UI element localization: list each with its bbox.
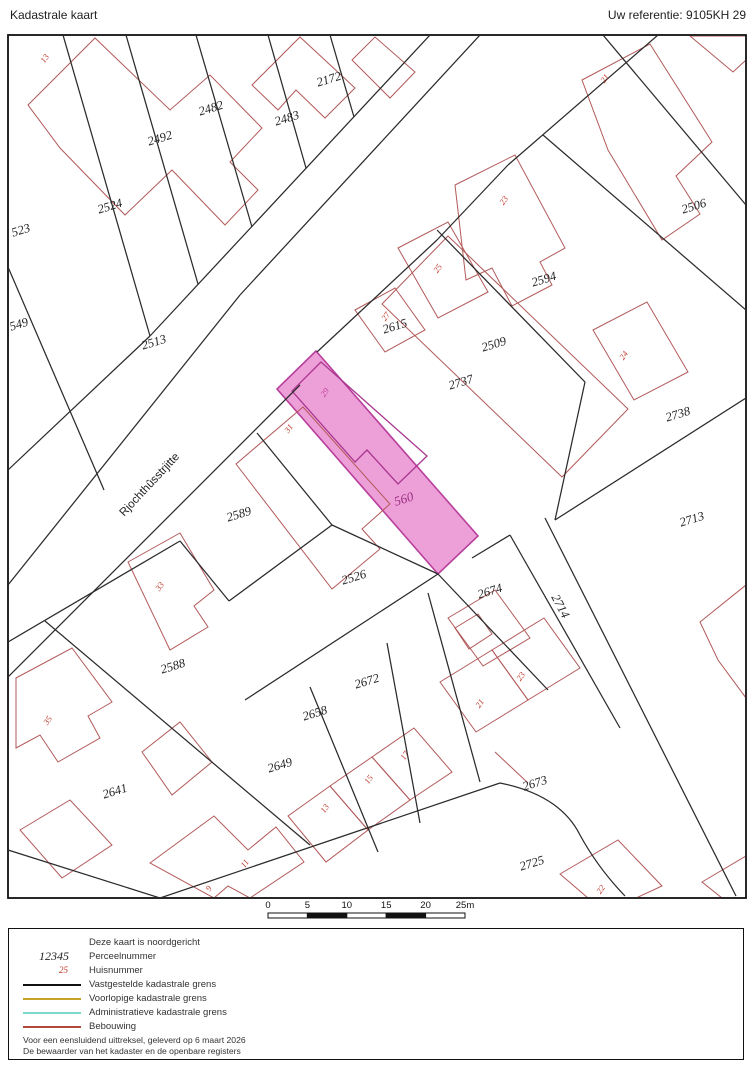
legend-item-label: Vastgestelde kadastrale grens — [89, 979, 216, 990]
legend-item-label: Voorlopige kadastrale grens — [89, 993, 207, 1004]
scalebar-label: 20 — [420, 900, 431, 911]
scalebar-segment — [386, 913, 425, 918]
scalebar-segment — [307, 913, 346, 918]
scalebar-label: 5 — [305, 900, 310, 911]
legend-item-label: Huisnummer — [89, 965, 143, 976]
legend-item-label: Perceelnummer — [89, 951, 156, 962]
kadaster-extract-page: Kadastrale kaart Uw referentie: 9105KH 2… — [0, 0, 754, 1080]
scalebar-label: 25m — [456, 900, 475, 911]
legend-line-swatch — [23, 984, 81, 986]
legend-line-swatch — [23, 998, 81, 1000]
legend-item-label: Administratieve kadastrale grens — [89, 1007, 227, 1018]
scalebar-segment — [268, 913, 307, 918]
legend-line-swatch — [23, 1012, 81, 1014]
legend-box: Deze kaart is noordgericht 12345Perceeln… — [8, 928, 744, 1060]
scalebar-segment — [426, 913, 465, 918]
legend-footnote-1: Voor een eensluidend uittreksel, gelever… — [23, 1035, 246, 1045]
scalebar-label: 15 — [381, 900, 392, 911]
legend-housenumber-sample: 25 — [59, 965, 68, 975]
cadastral-map: 2172248224832492252452354925132506259426… — [0, 0, 754, 930]
map-svg: 2172248224832492252452354925132506259426… — [0, 0, 754, 925]
scalebar-label: 0 — [265, 900, 270, 911]
legend-line-swatch — [23, 1026, 81, 1028]
scalebar-label: 10 — [342, 900, 353, 911]
legend-item-label: Bebouwing — [89, 1021, 136, 1032]
legend-parcelnumber-sample: 12345 — [39, 949, 69, 964]
scalebar-segment — [347, 913, 386, 918]
legend-footnote-2: De bewaarder van het kadaster en de open… — [23, 1046, 241, 1056]
